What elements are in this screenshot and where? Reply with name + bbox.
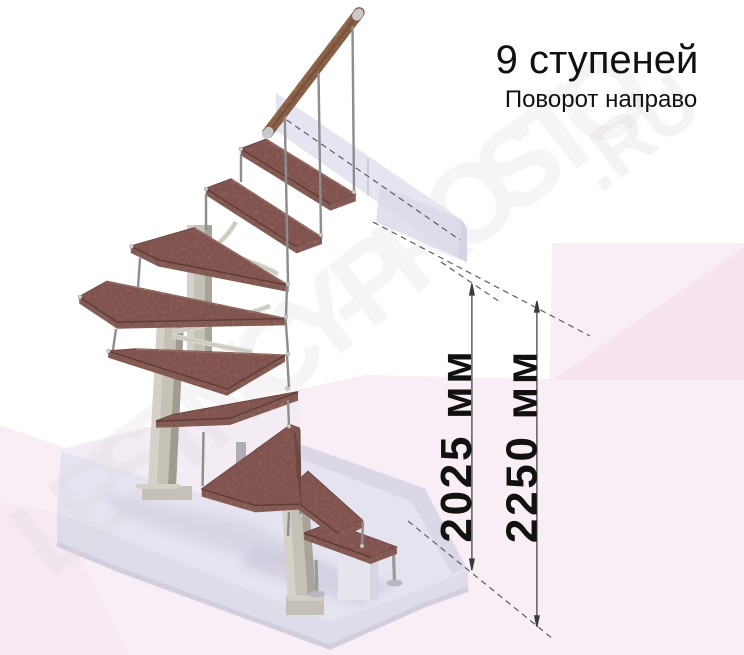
svg-text:9 ступеней: 9 ступеней (496, 38, 699, 82)
svg-text:2025 мм: 2025 мм (432, 348, 481, 542)
svg-text:Поворот направо: Поворот направо (505, 86, 697, 113)
svg-text:2250 мм: 2250 мм (498, 349, 547, 543)
